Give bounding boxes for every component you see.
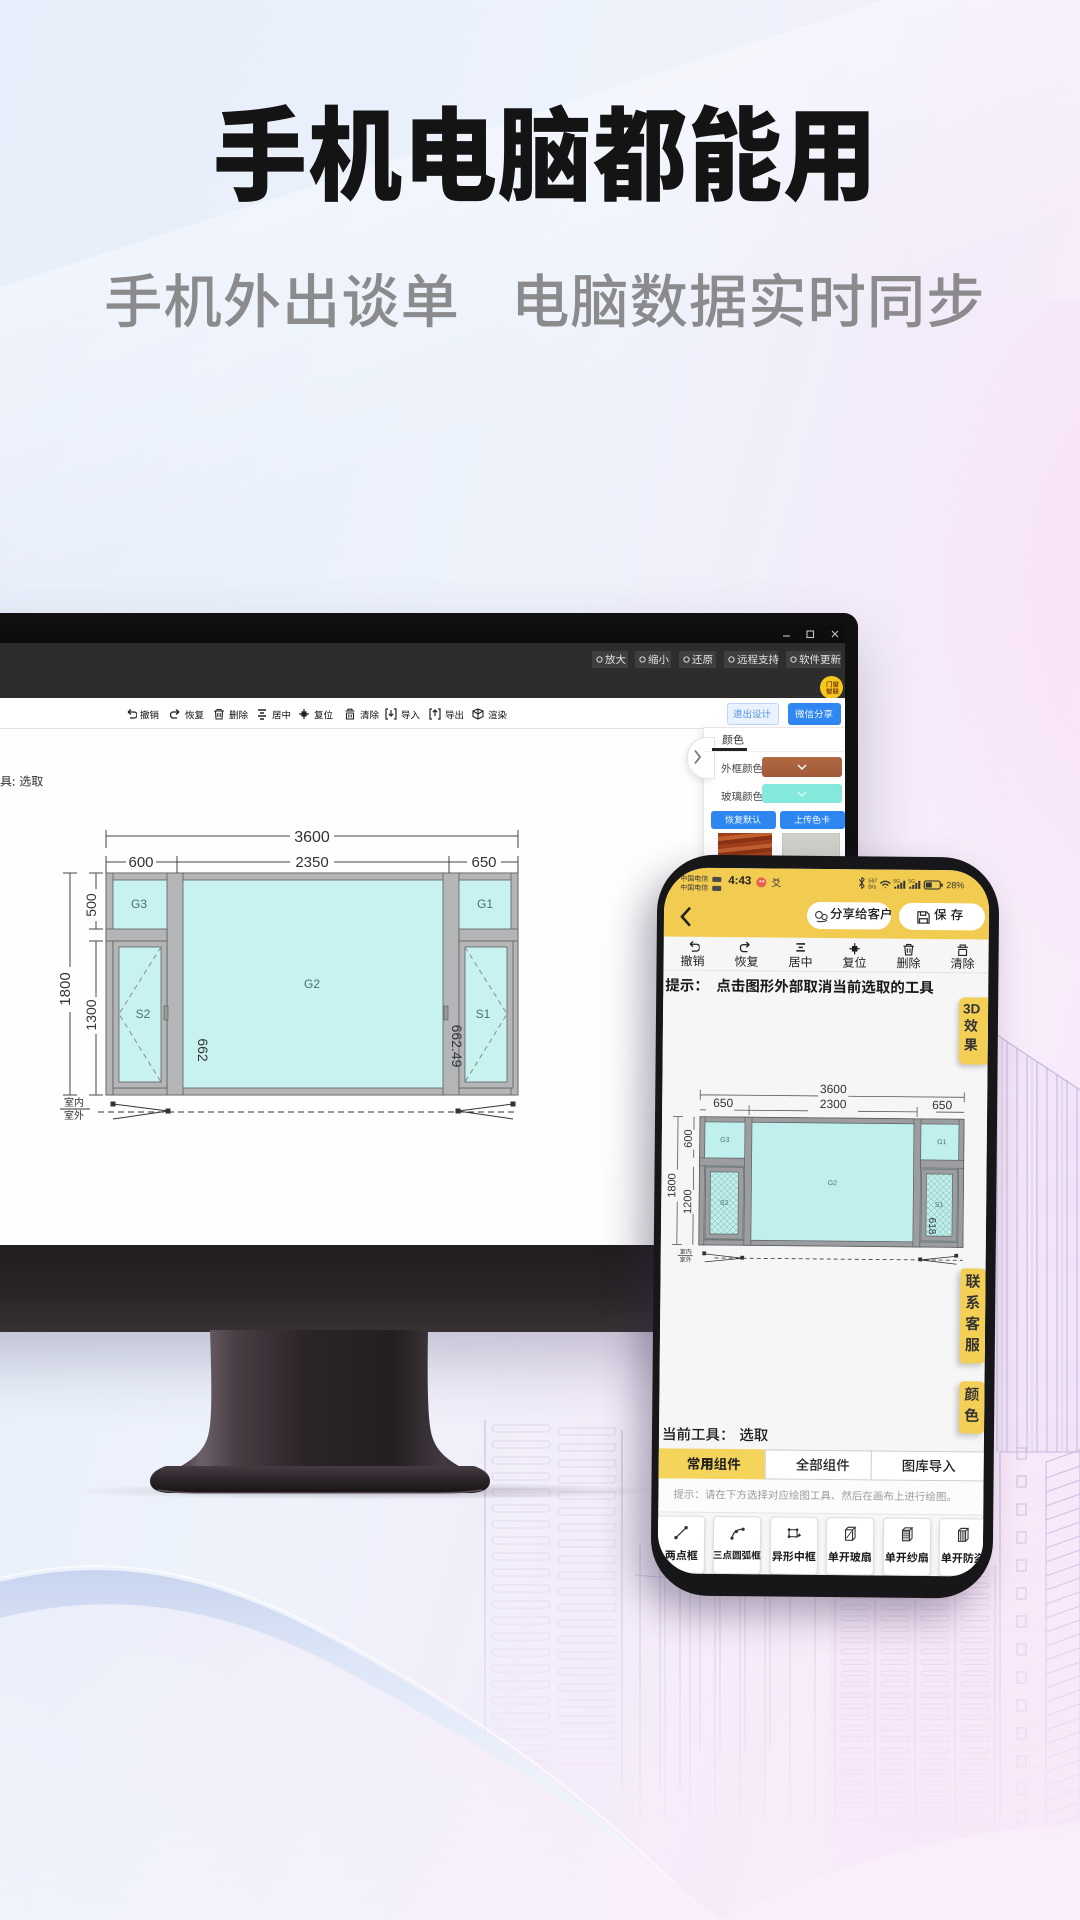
svg-text:5G: 5G (908, 879, 915, 885)
svg-text:662: 662 (195, 1038, 211, 1062)
svg-text:室内: 室内 (680, 1248, 692, 1256)
svg-text:G2: G2 (828, 1180, 838, 1187)
svg-text:G3: G3 (720, 1137, 730, 1144)
svg-text:室外: 室外 (680, 1256, 692, 1264)
svg-text:500: 500 (83, 893, 99, 917)
svg-text:2350: 2350 (295, 854, 328, 871)
svg-text:1300: 1300 (83, 999, 99, 1030)
svg-text:G3: G3 (131, 897, 147, 911)
svg-text:1800: 1800 (667, 1173, 679, 1198)
svg-text:600: 600 (128, 854, 153, 871)
svg-text:2300: 2300 (820, 1097, 847, 1111)
svg-text:28%: 28% (946, 880, 964, 890)
svg-text:室内: 室内 (64, 1096, 84, 1109)
svg-text:3600: 3600 (820, 1082, 847, 1096)
svg-text:S1: S1 (476, 1007, 491, 1021)
svg-text:S2: S2 (720, 1200, 729, 1207)
svg-text:618: 618 (926, 1218, 937, 1235)
svg-text:662.49: 662.49 (449, 1025, 465, 1068)
svg-text:G1: G1 (477, 897, 493, 911)
svg-text:650: 650 (471, 854, 496, 871)
svg-text:1200: 1200 (682, 1189, 694, 1214)
svg-text:3600: 3600 (294, 829, 330, 846)
svg-text:650: 650 (932, 1098, 952, 1112)
svg-text:1800: 1800 (57, 972, 74, 1005)
svg-text:S1: S1 (935, 1202, 944, 1209)
svg-text:5G: 5G (893, 879, 900, 885)
svg-text:S2: S2 (136, 1007, 151, 1021)
svg-text:G2: G2 (304, 977, 320, 991)
svg-text:B/s: B/s (868, 884, 876, 890)
svg-text:600: 600 (683, 1129, 695, 1147)
svg-text:室外: 室外 (64, 1109, 84, 1122)
svg-text:G1: G1 (937, 1139, 947, 1146)
svg-text:650: 650 (713, 1096, 733, 1110)
